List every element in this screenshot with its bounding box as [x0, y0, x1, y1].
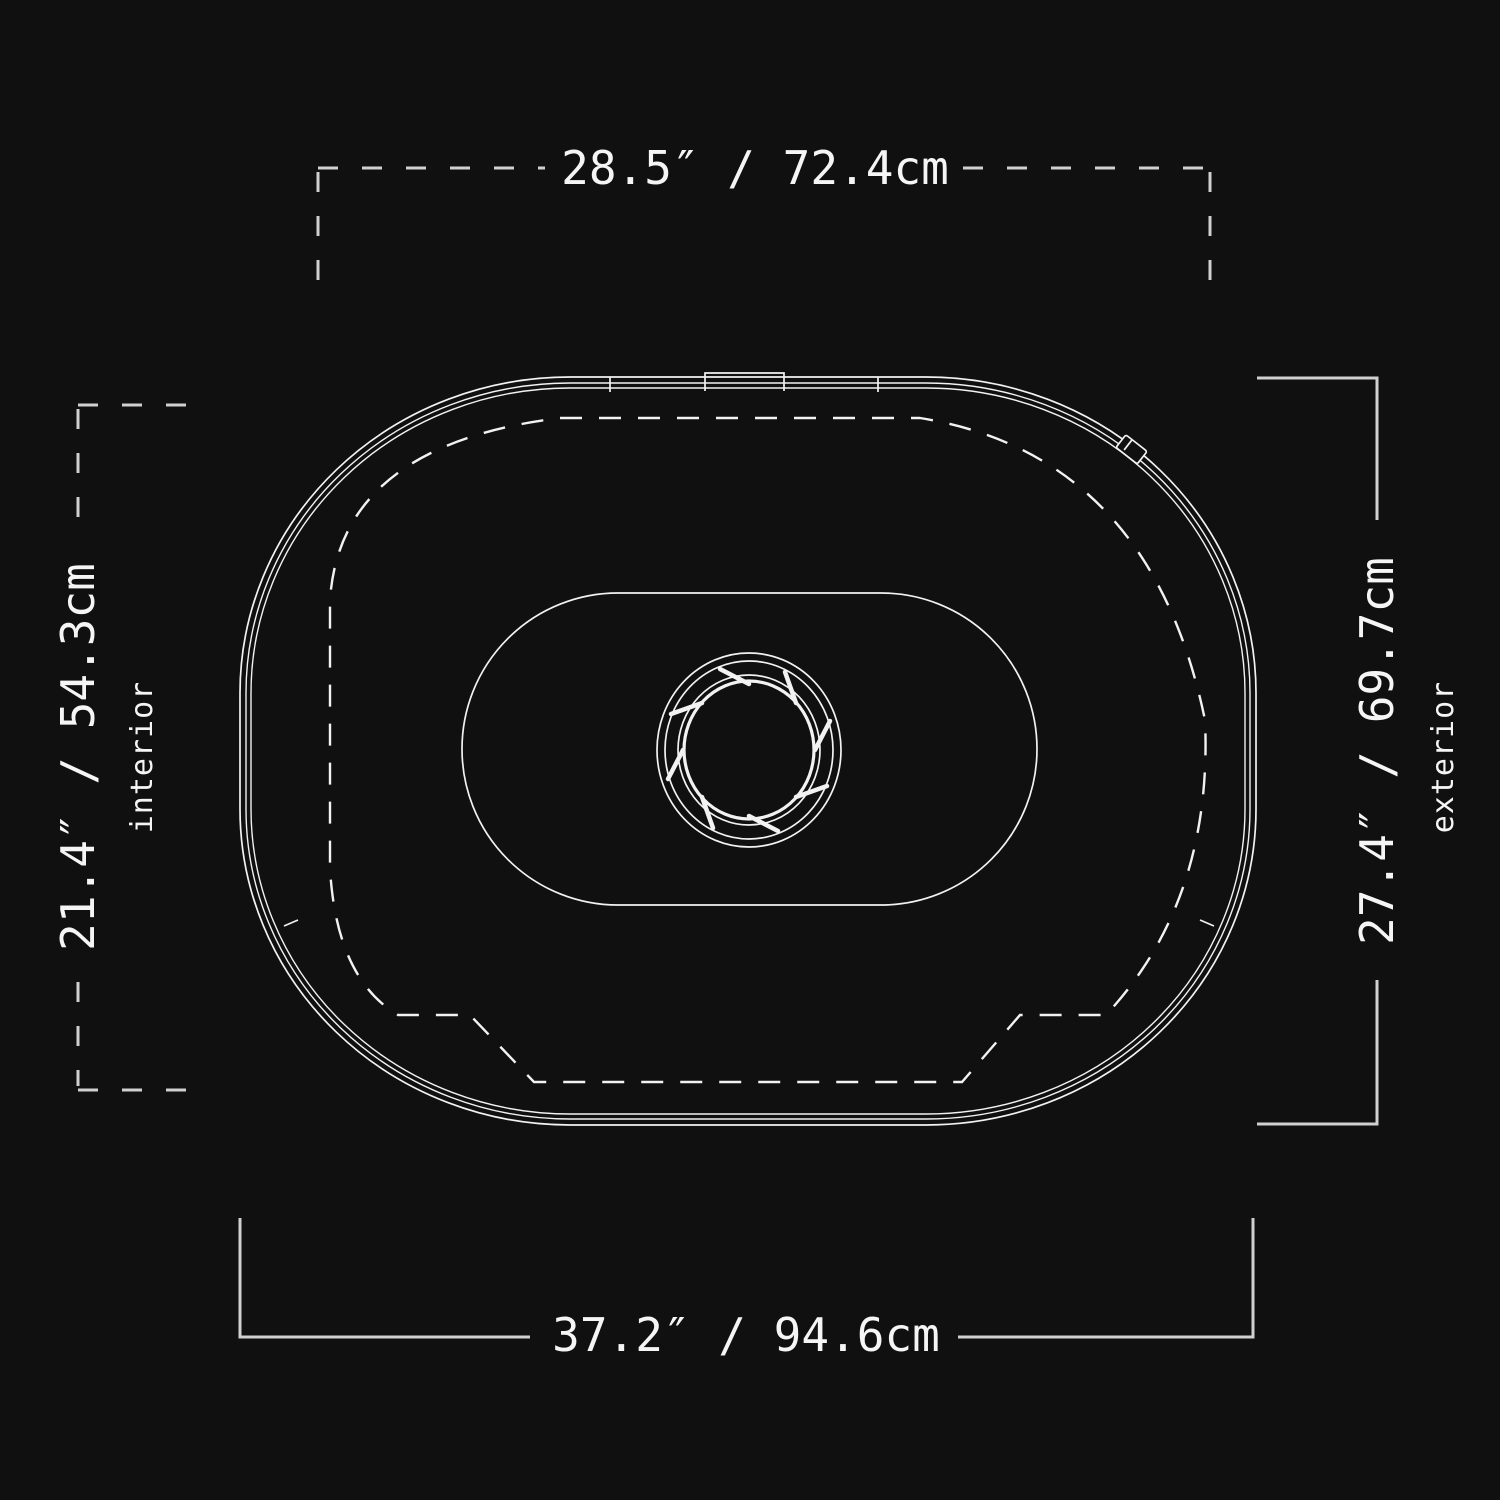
side-tab-body	[1116, 435, 1147, 464]
top-dimension-label: 28.5″ / 72.4cm	[561, 141, 949, 195]
outer-rim-middle-line	[246, 383, 1250, 1119]
rim-seam-tick-right	[1200, 920, 1214, 926]
bottom-dimension-bracket-left	[240, 1218, 530, 1337]
left-dimension-sublabel: interior	[125, 681, 160, 834]
right-dimension-sublabel: exterior	[1426, 681, 1461, 834]
right-dimension-bracket-bottom	[1257, 980, 1377, 1124]
outer-rim-inner-line	[251, 388, 1245, 1114]
center-ring-assembly	[657, 653, 841, 847]
diagram-stage: 28.5″ / 72.4cm 21.4″ / 54.3cm interior 2…	[0, 0, 1500, 1500]
inner-platform-outline	[462, 593, 1037, 905]
diagram-svg: 28.5″ / 72.4cm 21.4″ / 54.3cm interior 2…	[0, 0, 1500, 1500]
outer-rim-outline	[240, 377, 1256, 1125]
ring-hatch	[668, 750, 683, 779]
right-dimension-label: 27.4″ / 69.7cm	[1350, 557, 1404, 945]
product-drawing	[240, 373, 1256, 1125]
rim-seam-tick-left	[284, 920, 298, 926]
left-dimension: 21.4″ / 54.3cm interior	[51, 405, 200, 1090]
center-ring-second	[665, 661, 833, 839]
bottom-dimension-bracket-right	[958, 1218, 1253, 1337]
right-dimension: 27.4″ / 69.7cm exterior	[1257, 378, 1461, 1124]
side-tab	[1116, 435, 1147, 464]
left-dimension-label: 21.4″ / 54.3cm	[51, 563, 105, 951]
ring-hatch	[815, 721, 830, 750]
top-dimension: 28.5″ / 72.4cm	[318, 141, 1210, 290]
bottom-dimension: 37.2″ / 94.6cm	[240, 1218, 1253, 1362]
center-ring-third	[678, 675, 820, 825]
right-dimension-bracket-top	[1257, 378, 1377, 520]
bottom-dimension-label: 37.2″ / 94.6cm	[552, 1308, 940, 1362]
center-ring-hatches	[668, 669, 830, 831]
